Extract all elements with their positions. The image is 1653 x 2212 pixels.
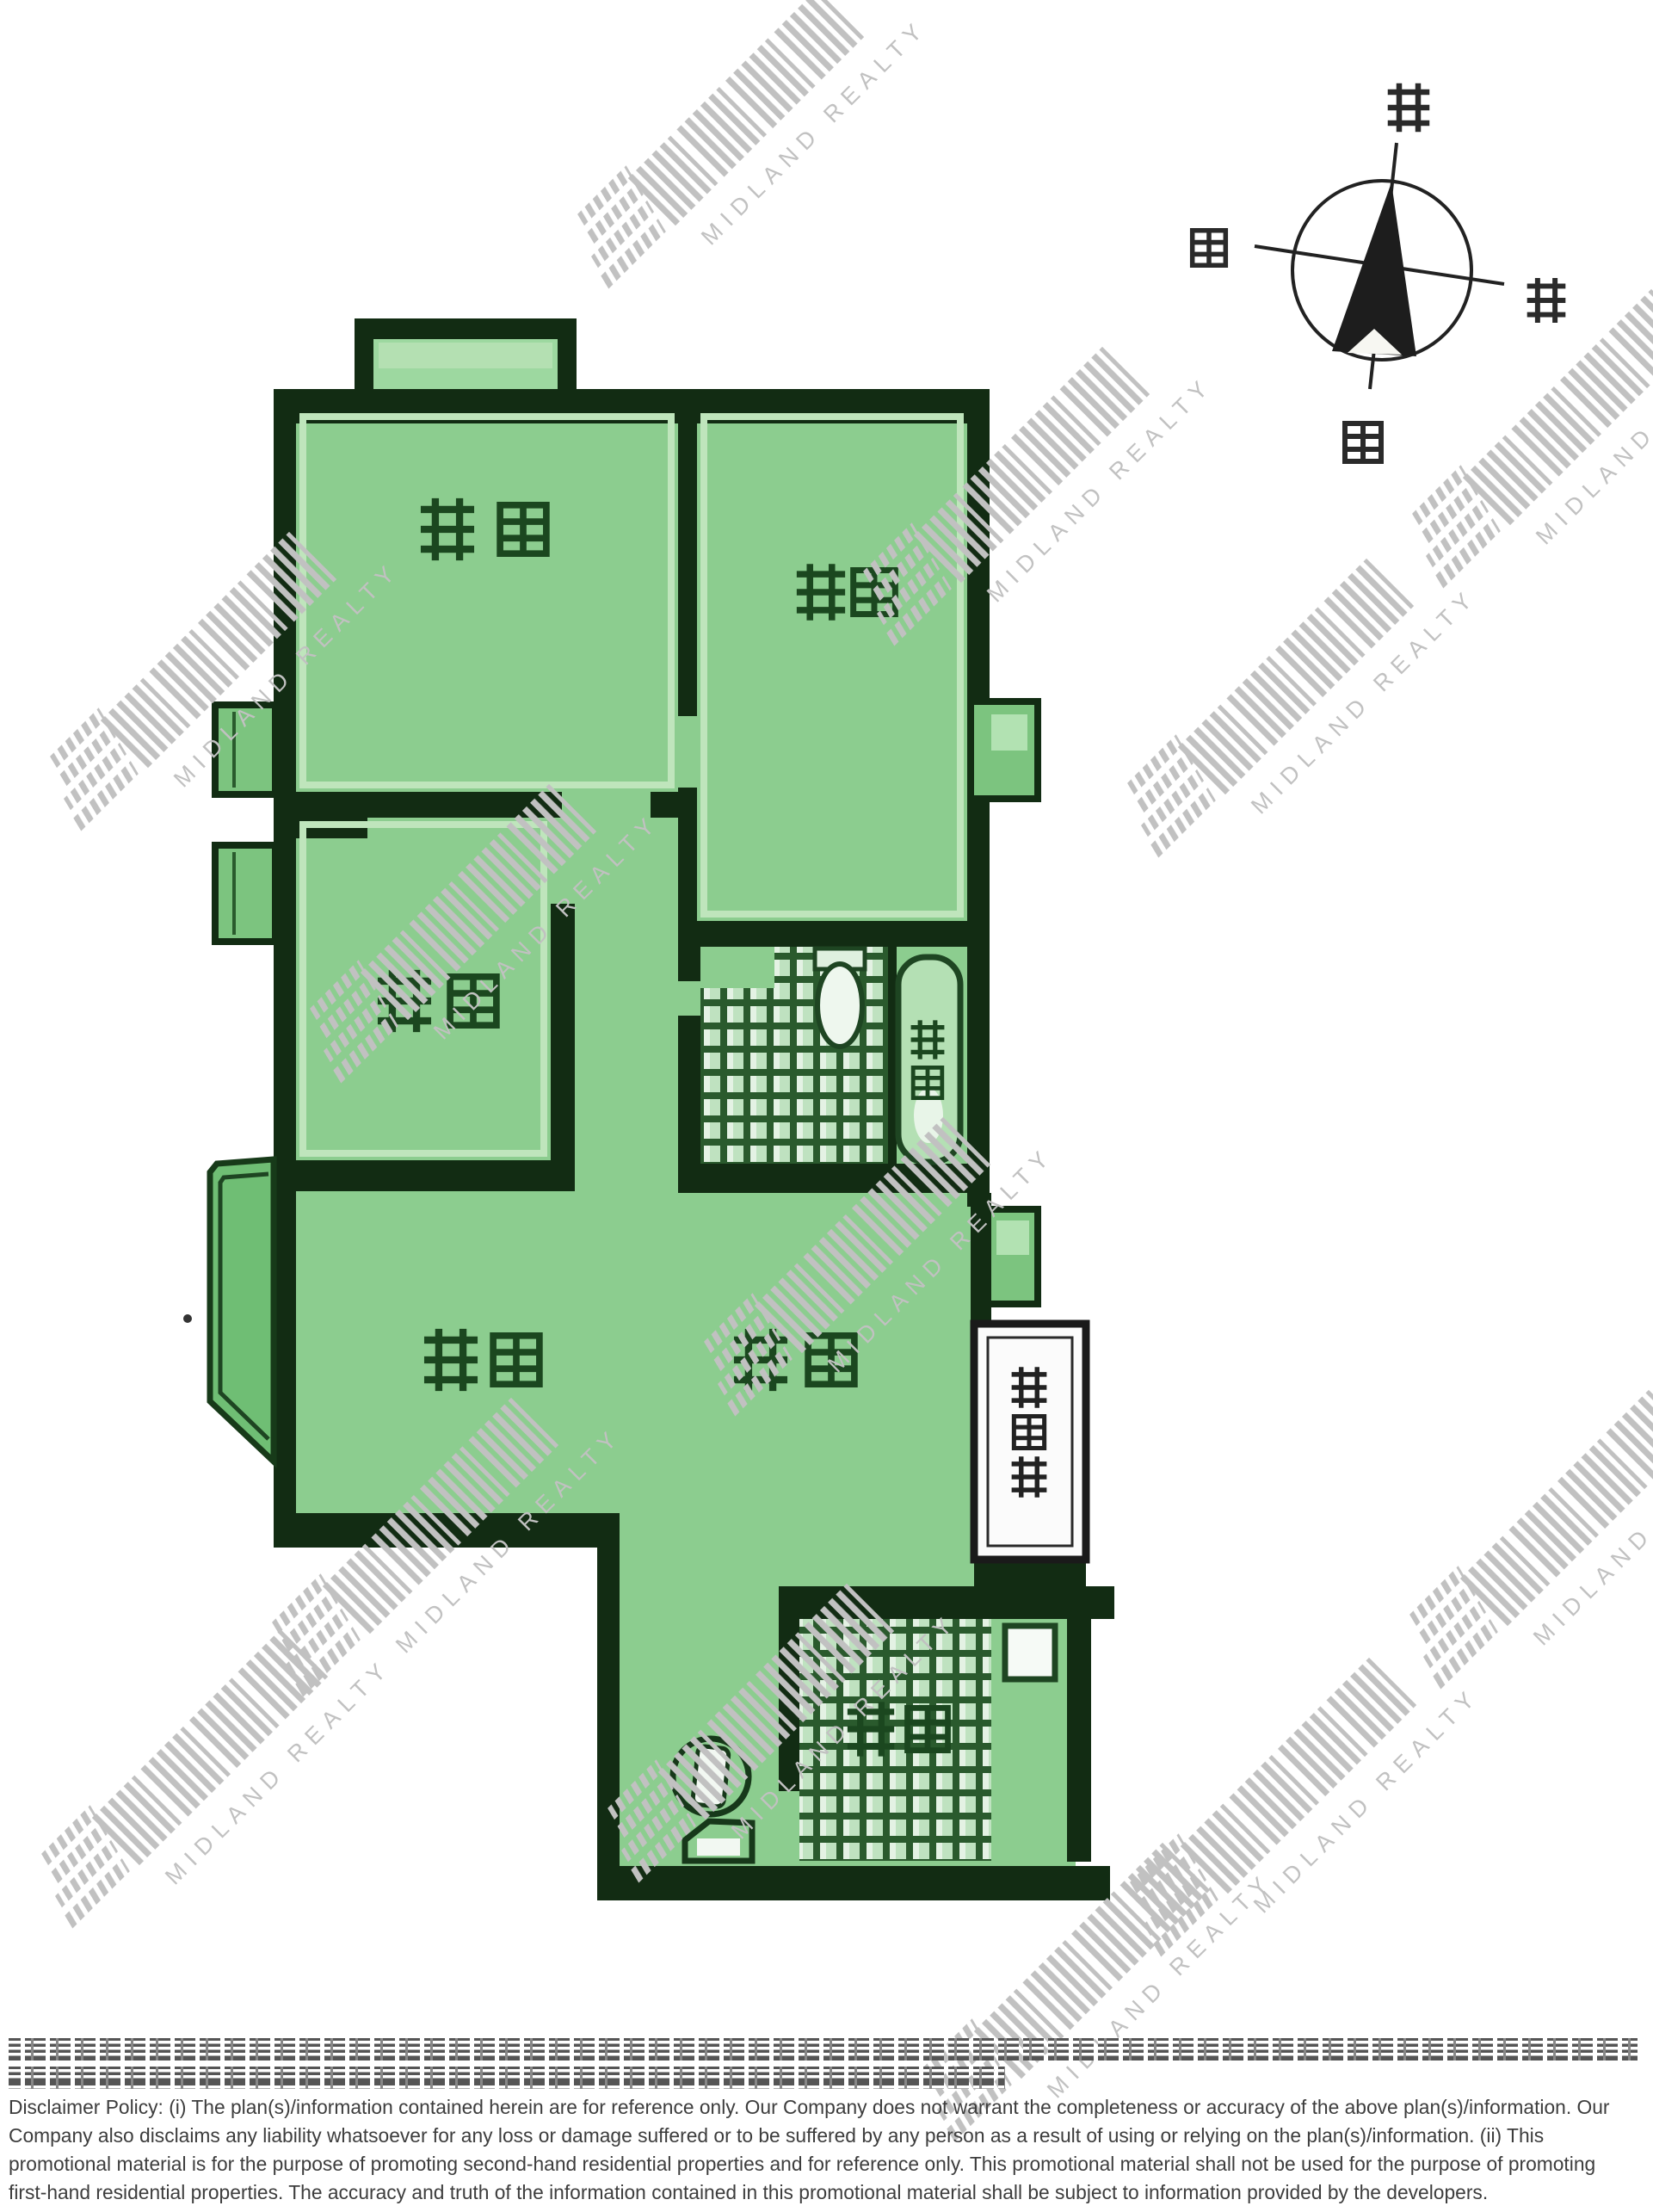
svg-text:first-hand residential propert: first-hand residential properties. The a…	[9, 2181, 1488, 2203]
svg-text:Disclaimer Policy: (i) The pla: Disclaimer Policy: (i) The plan(s)/infor…	[9, 2096, 1610, 2118]
svg-text:promotional material is for th: promotional material is for the purpose …	[9, 2153, 1595, 2175]
svg-text:Company also disclaims any lia: Company also disclaims any liability wha…	[9, 2124, 1544, 2147]
